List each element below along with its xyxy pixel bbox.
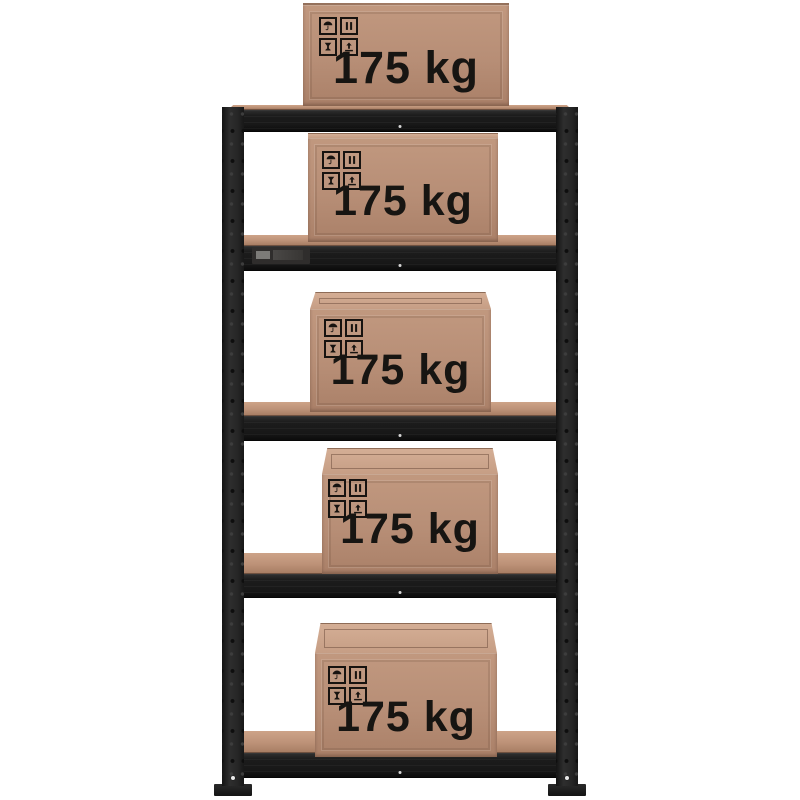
clamp-icon	[349, 479, 367, 497]
keep-dry-icon	[322, 151, 340, 169]
shelf-1	[228, 105, 572, 132]
screw-head	[399, 264, 402, 267]
box-top-face	[315, 623, 497, 653]
screw-head	[399, 771, 402, 774]
box-weight-label: 175 kg	[303, 45, 509, 90]
cardboard-box: 175 kg	[310, 292, 491, 412]
keep-dry-icon	[328, 666, 346, 684]
box-top-face	[310, 292, 491, 309]
box-front-face: 175 kg	[303, 5, 509, 106]
shelf-beam	[228, 110, 572, 132]
clamp-icon	[343, 151, 361, 169]
clamp-icon	[340, 17, 358, 35]
keep-dry-icon	[324, 319, 342, 337]
screw-head	[399, 125, 402, 128]
rack-post-right	[556, 107, 578, 786]
box-top-face	[322, 448, 498, 474]
box-weight-label: 175 kg	[322, 508, 498, 551]
foot-bolt	[565, 776, 569, 780]
box-front-face: 175 kg	[315, 653, 497, 757]
keep-dry-icon	[328, 479, 346, 497]
clamp-icon	[349, 666, 367, 684]
box-front-face: 175 kg	[310, 309, 491, 412]
shelf-beam	[228, 574, 572, 598]
screw-head	[399, 434, 402, 437]
box-weight-label: 175 kg	[308, 180, 498, 223]
clamp-icon	[345, 319, 363, 337]
screw-head	[399, 591, 402, 594]
foot-bolt	[231, 776, 235, 780]
cardboard-box: 175 kg	[308, 133, 498, 242]
cardboard-box: 175 kg	[322, 448, 498, 574]
box-weight-label: 175 kg	[315, 696, 497, 739]
box-weight-label: 175 kg	[310, 349, 491, 392]
product-photo: 175 kg 175 kg 175 kg	[0, 0, 800, 800]
rack-post-left	[222, 107, 244, 786]
box-front-face: 175 kg	[308, 138, 498, 242]
box-front-face: 175 kg	[322, 474, 498, 574]
cardboard-box: 175 kg	[315, 623, 497, 757]
shelf-beam	[228, 416, 572, 441]
brand-label	[252, 247, 310, 264]
keep-dry-icon	[319, 17, 337, 35]
cardboard-box: 175 kg	[303, 3, 509, 106]
